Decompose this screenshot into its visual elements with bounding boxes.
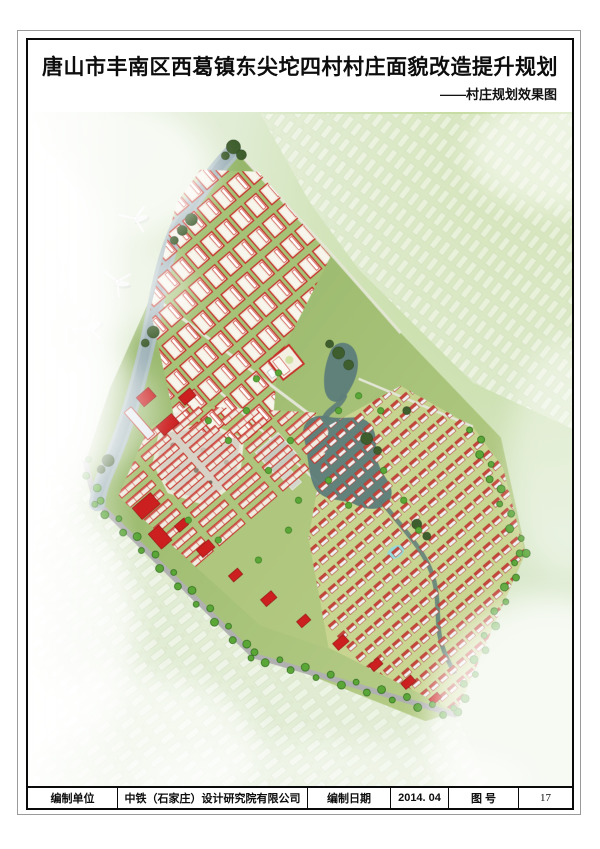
footer-unit-label: 编制单位	[28, 788, 117, 808]
drawing-sheet: 唐山市丰南区西葛镇东尖坨四村村庄面貌改造提升规划 ——村庄规划效果图	[0, 0, 600, 849]
village-plan-rendering	[28, 112, 572, 786]
footer-figno-label: 图 号	[448, 788, 518, 808]
rendering-area	[28, 112, 572, 786]
footer-date-value: 2014. 04	[390, 788, 448, 808]
drawing-frame: 唐山市丰南区西葛镇东尖坨四村村庄面貌改造提升规划 ——村庄规划效果图	[26, 38, 574, 810]
page-title: 唐山市丰南区西葛镇东尖坨四村村庄面貌改造提升规划	[28, 40, 572, 81]
page-subtitle: ——村庄规划效果图	[28, 84, 572, 103]
footer-unit-value: 中铁（石家庄）设计研究院有限公司	[117, 788, 307, 808]
title-block: 唐山市丰南区西葛镇东尖坨四村村庄面貌改造提升规划 ——村庄规划效果图	[28, 40, 572, 112]
footer-figno-value: 17	[518, 788, 572, 808]
title-table: 编制单位 中铁（石家庄）设计研究院有限公司 编制日期 2014. 04 图 号 …	[28, 786, 572, 808]
footer-date-label: 编制日期	[307, 788, 390, 808]
